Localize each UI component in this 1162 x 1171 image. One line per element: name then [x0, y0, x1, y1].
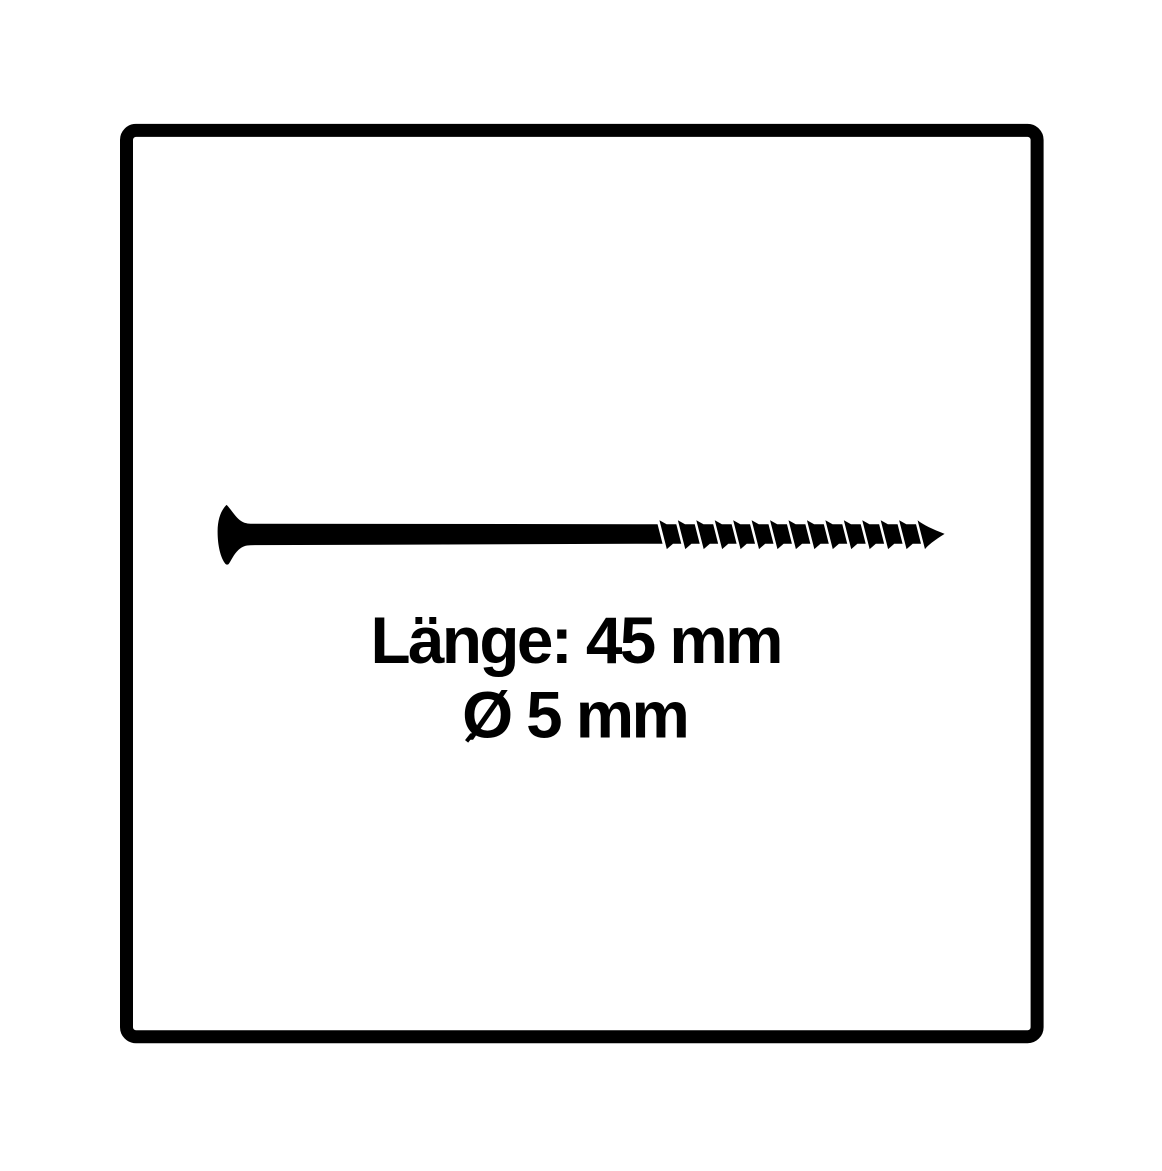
- svg-text:Ø 5 mm: Ø 5 mm: [462, 678, 687, 751]
- svg-text:Länge: 45 mm: Länge: 45 mm: [370, 604, 780, 677]
